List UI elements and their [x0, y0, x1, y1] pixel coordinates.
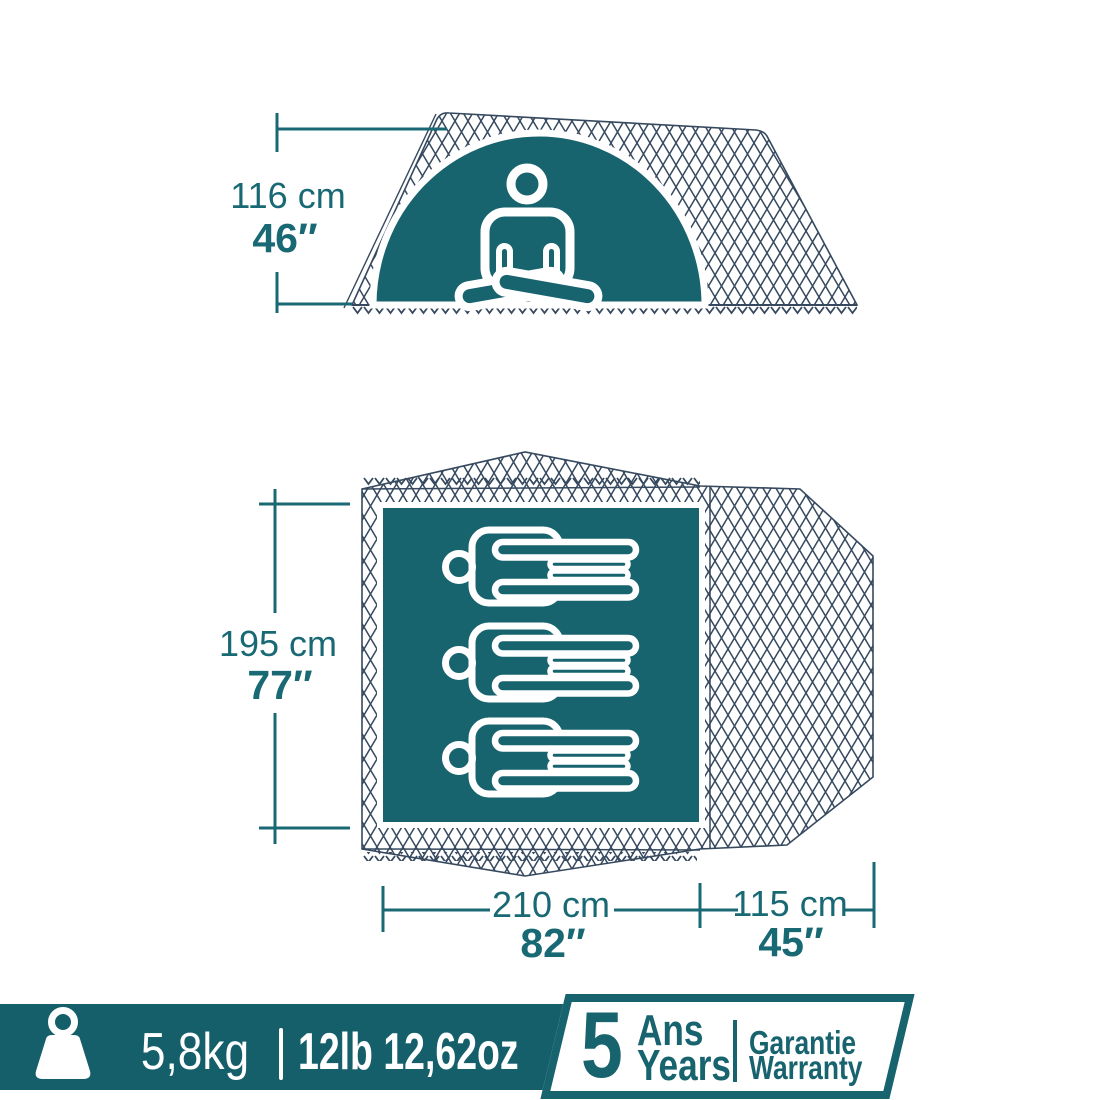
person-lying-icon — [446, 530, 637, 603]
bedroom-width-cm-label: 210 cm — [492, 884, 610, 925]
warranty-badge-divider — [733, 1020, 737, 1082]
stitch-strip-top — [363, 477, 700, 486]
warranty-badge: 5 Ans Years Garantie Warranty — [553, 994, 902, 1099]
weight-metric-label: 5,8kg — [131, 1022, 259, 1082]
weight-units-divider — [279, 1028, 283, 1080]
weight-icon — [26, 1005, 100, 1083]
bedroom-bottom-line — [362, 849, 700, 850]
warranty-years-labels: Ans Years — [637, 1013, 731, 1083]
depth-in-label: 77″ — [247, 662, 312, 708]
warranty-label-en: Warranty — [749, 1055, 862, 1080]
warranty-years-number: 5 — [581, 998, 623, 1092]
warranty-text-labels: Garantie Warranty — [749, 1030, 862, 1080]
person-lying-icon — [446, 721, 637, 794]
porch-width-cm-label: 115 cm — [732, 883, 847, 924]
tent-diagram-graphic: 116 cm 46″ 195 cm 77″ 210 cm 82″ 115 cm … — [0, 0, 1100, 1100]
tent-spec-diagram: 116 cm 46″ 195 cm 77″ 210 cm 82″ 115 cm … — [0, 0, 1100, 1100]
weight-imperial-label: 12lb 12,62oz — [298, 1022, 519, 1082]
stitch-strip-bottom — [363, 852, 697, 861]
tent-floor-plan — [362, 452, 873, 876]
porch-width-in-label: 45″ — [758, 919, 823, 965]
person-lying-icon — [446, 626, 637, 699]
height-cm-label: 116 cm — [230, 175, 345, 216]
height-in-label: 46″ — [252, 215, 317, 261]
depth-cm-label: 195 cm — [219, 623, 337, 664]
warranty-years-en: Years — [637, 1048, 731, 1083]
tent-side-view — [344, 113, 857, 315]
bedroom-width-in-label: 82″ — [520, 920, 585, 966]
